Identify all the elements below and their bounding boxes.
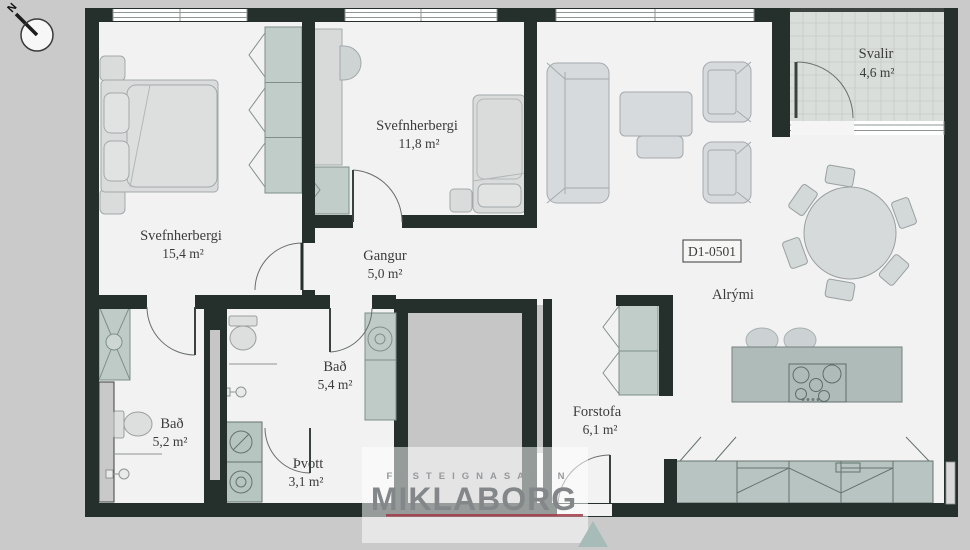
- watermark-underline: [386, 514, 583, 517]
- balcony-door-opening: [791, 121, 854, 135]
- room-label-entrance: Forstofa: [573, 404, 622, 420]
- water-heater: [365, 313, 396, 420]
- compass-north-label: N: [5, 1, 19, 15]
- nightstand: [450, 189, 472, 212]
- kitchen-island: [732, 347, 902, 402]
- room-label-laundry: Þvott: [293, 456, 324, 472]
- room-area-bath-main: 5,4 m²: [318, 377, 353, 392]
- room-area-bath-second: 5,2 m²: [153, 434, 188, 449]
- unit-id-badge: D1-0501: [683, 240, 741, 262]
- bed-double: [100, 56, 218, 214]
- room-label-bath-second: Bað: [160, 416, 183, 432]
- room-area-bedroom-large: 15,4 m²: [162, 246, 204, 261]
- pillow: [478, 184, 521, 207]
- floor-plan-drawing: N Svefnherbergi 15,4 m² Svefnherbergi 11…: [0, 0, 970, 550]
- balcony-railing: [790, 8, 944, 12]
- armchair: [703, 142, 751, 203]
- unit-id-label: D1-0501: [688, 244, 736, 259]
- room-label-hallway: Gangur: [363, 248, 407, 264]
- dining-table: [804, 187, 896, 279]
- room-label-bath-main: Bað: [323, 359, 346, 375]
- shaft-gap: [210, 330, 220, 480]
- drain-icon: [106, 334, 122, 350]
- room-area-bedroom-small: 11,8 m²: [398, 136, 439, 151]
- toilet-bath-second: [114, 411, 152, 438]
- room-area-entrance: 6,1 m²: [583, 422, 618, 437]
- side-window: [946, 462, 955, 504]
- room-label-bedroom-small: Svefnherbergi: [376, 118, 458, 134]
- shower: [99, 306, 130, 380]
- duct: [99, 382, 114, 502]
- nightstand: [100, 189, 125, 214]
- pillow: [104, 141, 129, 181]
- room-label-bedroom-large: Svefnherbergi: [140, 228, 222, 244]
- washer: [221, 422, 262, 462]
- dryer: [221, 462, 262, 502]
- room-label-living: Alrými: [712, 287, 754, 303]
- watermark-logo: FASTEIGNASALAN MIKLABORG: [362, 447, 608, 547]
- compass-icon: N: [5, 1, 53, 51]
- watermark-title: MIKLABORG: [371, 481, 577, 517]
- room-area-balcony: 4,6 m²: [860, 65, 895, 80]
- armchair: [703, 62, 751, 122]
- floor-plan-page: N Svefnherbergi 15,4 m² Svefnherbergi 11…: [0, 0, 970, 550]
- sofa: [547, 63, 609, 203]
- pillow: [104, 93, 129, 133]
- room-area-laundry: 3,1 m²: [289, 474, 324, 489]
- nightstand: [100, 56, 125, 81]
- room-label-balcony: Svalir: [859, 46, 894, 62]
- room-area-hallway: 5,0 m²: [368, 266, 403, 281]
- toilet-bath-main: [229, 316, 257, 350]
